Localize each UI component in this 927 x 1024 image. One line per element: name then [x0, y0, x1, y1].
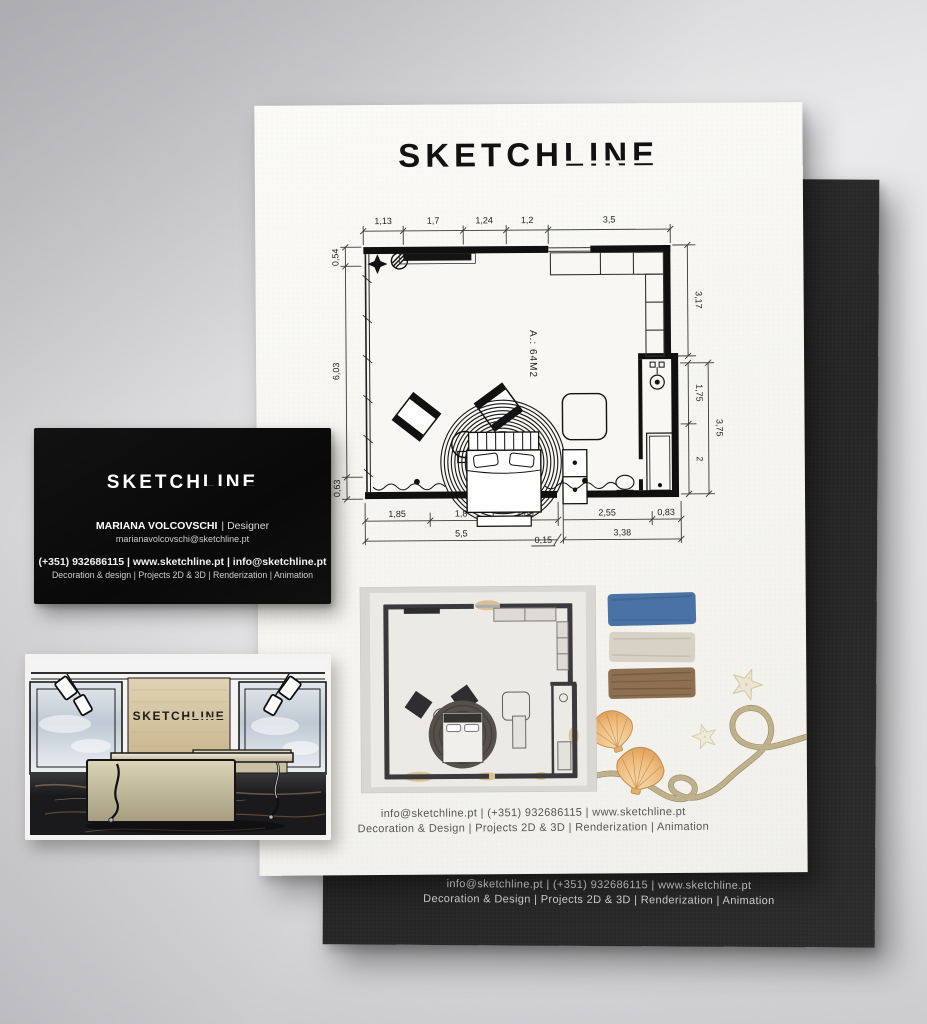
card-name-line: MARIANA VOLCOVSCHI| Designer [34, 520, 331, 532]
black-footer-services-line: Decoration & Design | Projects 2D & 3D |… [323, 891, 875, 909]
svg-text:6,03: 6,03 [331, 363, 341, 381]
card-email: marianavolcovschi@sketchline.pt [34, 534, 331, 544]
logo-text-sketch: SKETCH [398, 136, 564, 174]
poster-footer: info@sketchline.pt | (+351) 932686115 | … [259, 804, 807, 838]
svg-text:0,15: 0,15 [535, 535, 553, 545]
svg-text:2: 2 [695, 456, 705, 461]
designer-name: MARIANA VOLCOVSCHI [96, 520, 218, 532]
svg-text:3,17: 3,17 [694, 291, 704, 309]
svg-text:1,13: 1,13 [374, 216, 392, 226]
svg-text:0,63: 0,63 [332, 480, 342, 498]
floor-plan-drawing: 1,13 1,7 1,24 1,2 3,5 0,54 6,03 0,63 3,1… [315, 202, 748, 577]
svg-text:1,85: 1,85 [388, 509, 406, 519]
poster-footer-services-line: Decoration & Design | Projects 2D & 3D |… [259, 819, 807, 838]
svg-text:1,24: 1,24 [475, 215, 493, 225]
svg-text:0,83: 0,83 [657, 507, 675, 517]
svg-text:1,2: 1,2 [521, 215, 534, 225]
card-logo-line: LINE [203, 472, 258, 494]
white-poster-sheet: SKETCHLINE [254, 102, 807, 876]
svg-text:1,8: 1,8 [455, 508, 468, 518]
svg-text:3,75: 3,75 [715, 419, 725, 437]
starfish-large [728, 664, 766, 701]
svg-text:5,5: 5,5 [455, 528, 468, 538]
area-label: A.: 64M2 [527, 330, 538, 378]
plan-dresser [563, 450, 587, 504]
paint-swatch-white [609, 632, 695, 663]
colored-plan-rug-bed [428, 700, 496, 768]
logo-text-line: LINE [564, 135, 659, 174]
render-wall-logo: SKETCHLINE [133, 709, 226, 723]
svg-text:3,5: 3,5 [603, 214, 616, 224]
plan-bed [467, 432, 542, 527]
black-sheet-footer: info@sketchline.pt | (+351) 932686115 | … [323, 876, 875, 909]
card-logo-sketch: SKETCH [107, 472, 203, 493]
svg-text:0,54: 0,54 [330, 249, 340, 267]
card-contact-line: (+351) 932686115 | www.sketchline.pt | i… [34, 556, 331, 568]
render-scene: SKETCHLINE [25, 654, 331, 840]
business-card-logo: SKETCHLINE [34, 472, 331, 494]
plan-window-top [548, 248, 590, 252]
colored-floor-plan [360, 586, 597, 794]
paint-swatch-brown [608, 667, 696, 699]
card-services-line: Decoration & design | Projects 2D & 3D |… [34, 570, 331, 580]
render-preview-photo: SKETCHLINE [25, 654, 331, 840]
designer-role: | Designer [221, 520, 269, 532]
svg-text:1,7: 1,7 [427, 216, 440, 226]
svg-text:2,55: 2,55 [598, 507, 616, 517]
moodboard [596, 586, 808, 827]
mockup-scene: info@sketchline.pt | (+351) 932686115 | … [0, 0, 927, 1024]
business-card: SKETCHLINE MARIANA VOLCOVSCHI| Designer … [34, 428, 331, 604]
poster-logo: SKETCHLINE [255, 134, 803, 176]
render-logo-cut-line [187, 717, 225, 719]
svg-text:3,38: 3,38 [614, 527, 632, 537]
svg-text:1,75: 1,75 [694, 384, 704, 402]
paint-swatch-blue [607, 592, 696, 626]
starfish-small [690, 721, 720, 750]
